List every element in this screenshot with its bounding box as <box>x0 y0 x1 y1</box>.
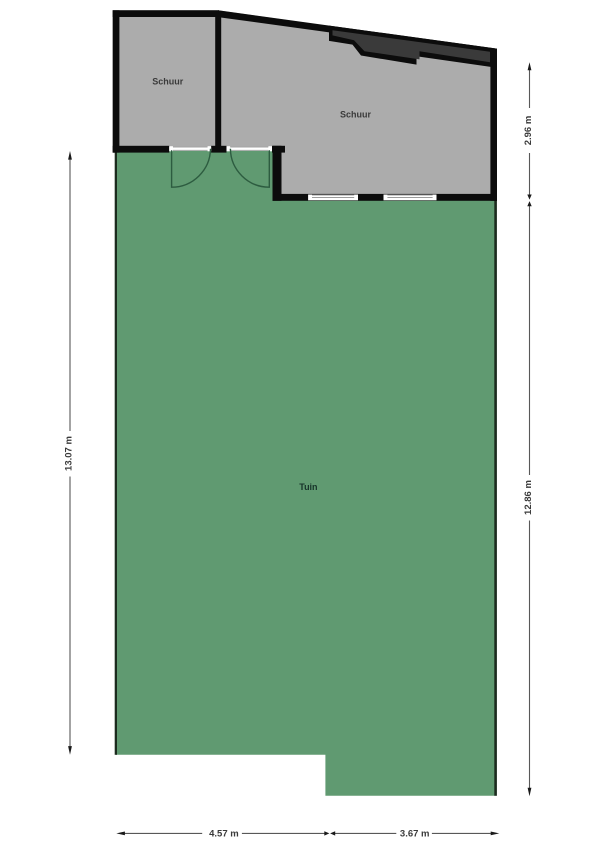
svg-text:2.96 m: 2.96 m <box>523 116 534 146</box>
svg-text:Tuin: Tuin <box>299 482 317 492</box>
svg-text:12.86 m: 12.86 m <box>523 480 534 515</box>
svg-text:13.07 m: 13.07 m <box>64 436 75 471</box>
svg-text:4.57 m: 4.57 m <box>209 829 239 840</box>
svg-text:Schuur: Schuur <box>152 76 184 86</box>
svg-text:3.67 m: 3.67 m <box>400 829 430 840</box>
svg-text:Schuur: Schuur <box>340 109 372 119</box>
